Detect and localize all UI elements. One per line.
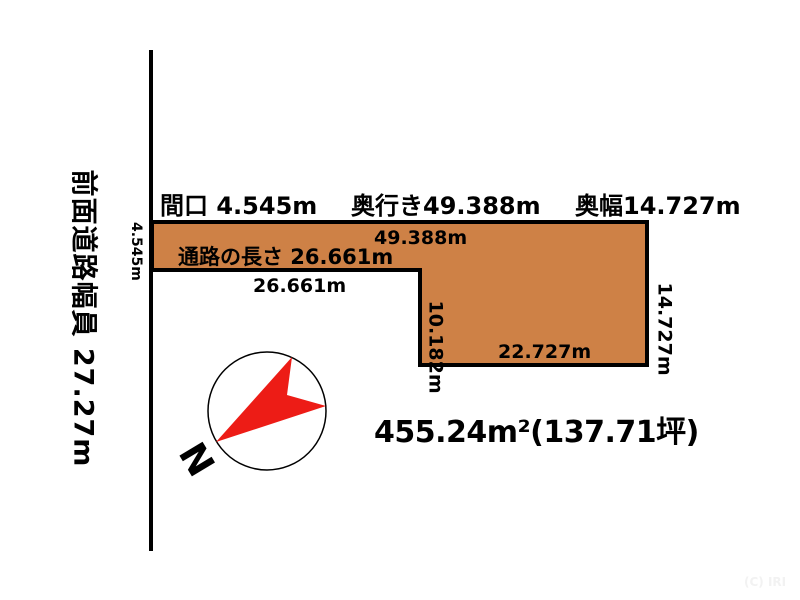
rear-width-header-label: 奥幅14.727m <box>575 194 741 218</box>
front-road-width-label: 前面道路幅員 27.27m <box>70 170 97 422</box>
corridor-length-label: 通路の長さ 26.661m <box>178 247 393 268</box>
frontage-header-label: 間口 4.545m <box>160 194 317 218</box>
depth-header-label: 奥行き49.388m <box>351 194 541 218</box>
right-edge-dimension: 14.727m <box>655 283 674 347</box>
site-plan-canvas <box>0 0 800 600</box>
step-edge-dimension: 10.182m <box>426 301 445 369</box>
total-area-label: 455.24m²(137.71坪) <box>374 418 699 448</box>
road-frontage-measure: 4.545m <box>129 222 143 278</box>
copyright-watermark: (C) IRI <box>744 575 786 589</box>
corridor-bottom-dimension: 26.661m <box>253 277 346 296</box>
bottom-edge-dimension: 22.727m <box>498 343 591 362</box>
